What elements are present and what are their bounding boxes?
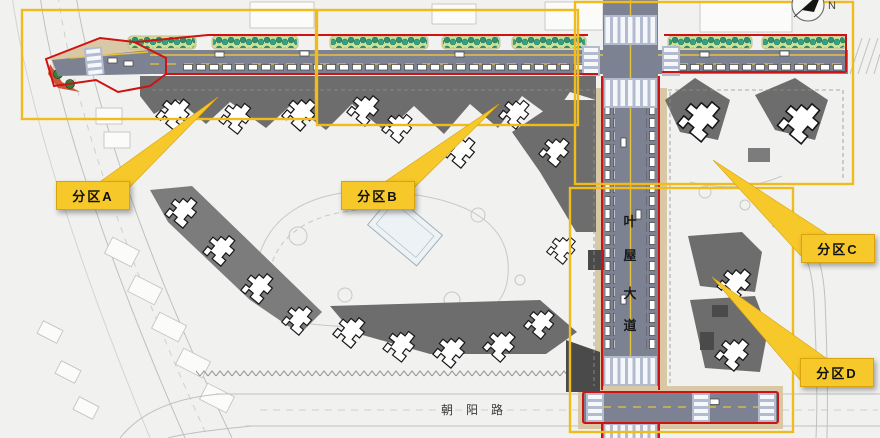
east-avenue-char-3: 大	[622, 283, 638, 302]
east-avenue-char-1: 叶	[622, 211, 638, 230]
zone-d-label-text: 分区D	[816, 363, 857, 382]
north-label: N	[828, 0, 836, 12]
zone-b-label-text: 分区B	[357, 186, 398, 205]
planting-beds	[128, 36, 846, 49]
south-road-char-1: 朝	[440, 401, 454, 418]
zone-c-label: 分区C	[801, 234, 875, 263]
south-road-char-3: 路	[490, 401, 504, 418]
east-avenue-char-4: 道	[622, 315, 638, 334]
east-avenue-char-2: 屋	[622, 245, 638, 264]
zone-c-label-text: 分区C	[817, 239, 858, 258]
master-plan-canvas: 分区A 分区B 分区C 分区D 叶 屋 大 道 朝 阳 路 N	[0, 0, 880, 438]
site-plan-drawing	[0, 0, 880, 438]
zone-a-label: 分区A	[56, 181, 130, 210]
zone-d-label: 分区D	[800, 358, 874, 387]
south-road-char-2: 阳	[465, 401, 479, 418]
zone-b-label: 分区B	[341, 181, 415, 210]
zone-a-label-text: 分区A	[72, 186, 113, 205]
